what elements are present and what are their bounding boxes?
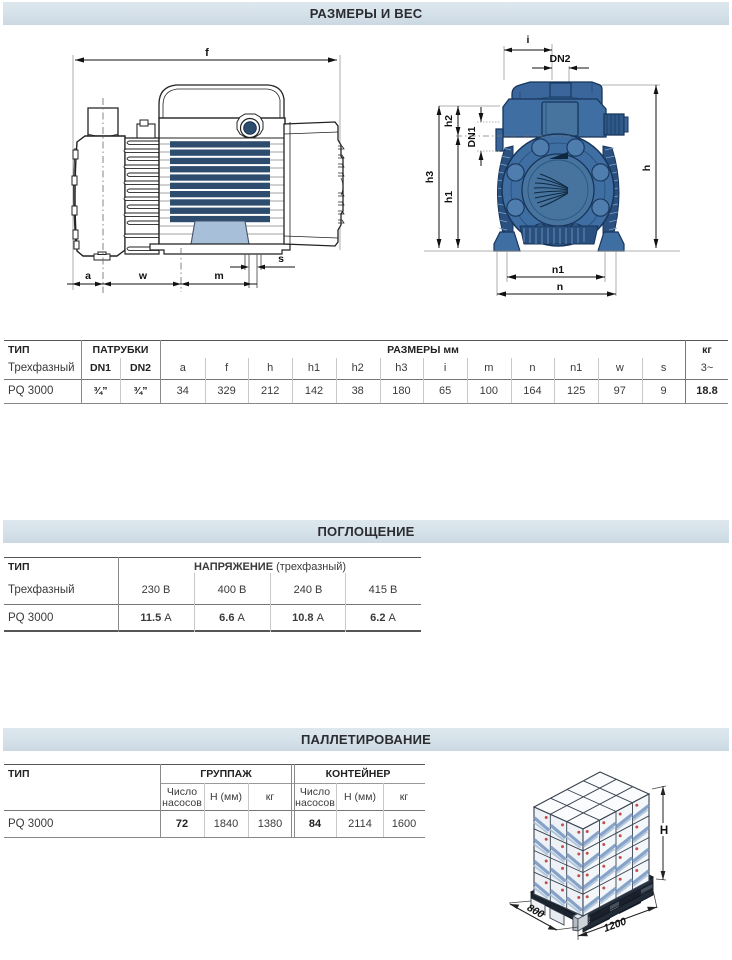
svg-text:h: h [641,165,653,171]
svg-text:n: n [557,281,563,293]
svg-text:m: m [214,270,223,282]
svg-text:h2: h2 [443,115,455,127]
svg-text:w: w [138,270,148,282]
svg-text:H: H [660,825,668,837]
svg-text:n1: n1 [552,264,564,276]
svg-text:DN1: DN1 [466,126,478,147]
svg-text:h1: h1 [443,191,455,203]
svg-text:f: f [205,47,209,59]
svg-text:DN2: DN2 [549,53,570,65]
svg-text:i: i [527,34,530,46]
svg-text:a: a [85,270,91,282]
svg-text:s: s [278,253,284,265]
svg-text:h3: h3 [424,171,436,183]
